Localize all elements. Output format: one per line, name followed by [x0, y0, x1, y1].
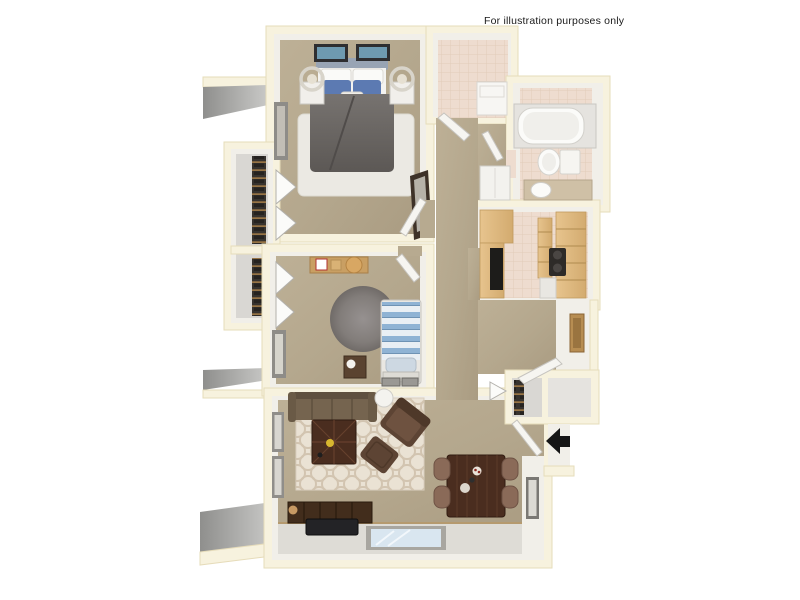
dining-table — [447, 455, 505, 517]
bed-twin — [381, 300, 421, 386]
floor-plan-page: For illustration purposes only — [0, 0, 800, 600]
entry-hall-wall — [556, 300, 598, 370]
bedroom-2-window — [272, 330, 286, 378]
coffee-table — [312, 420, 356, 464]
exterior-ledge-bottom-left — [200, 502, 272, 565]
bedroom-1-window — [274, 102, 288, 160]
pantry-shelves — [514, 380, 524, 415]
tv — [306, 519, 358, 535]
living-room-window-bottom — [366, 526, 446, 550]
dishwasher — [540, 278, 556, 298]
desk — [310, 257, 368, 273]
floor-plan-rendering — [0, 0, 800, 600]
range — [490, 248, 503, 290]
decor-item — [289, 506, 298, 515]
side-table — [375, 389, 393, 407]
laundry-appliance — [477, 82, 507, 115]
refrigerator-cabinet — [480, 210, 513, 243]
wall-picture — [570, 314, 584, 352]
cooktop — [549, 248, 566, 276]
nightstand — [344, 356, 366, 378]
living-room-window-right — [526, 477, 539, 519]
coat-closet — [548, 378, 591, 417]
exterior-ledge-top-left — [203, 77, 268, 119]
exterior-ledge-mid-left — [203, 368, 268, 398]
bathtub — [514, 104, 596, 148]
bathroom-sink — [524, 180, 592, 200]
table-decor — [326, 439, 334, 447]
hanging-clothes — [252, 156, 266, 244]
disclaimer-text: For illustration purposes only — [484, 14, 624, 28]
